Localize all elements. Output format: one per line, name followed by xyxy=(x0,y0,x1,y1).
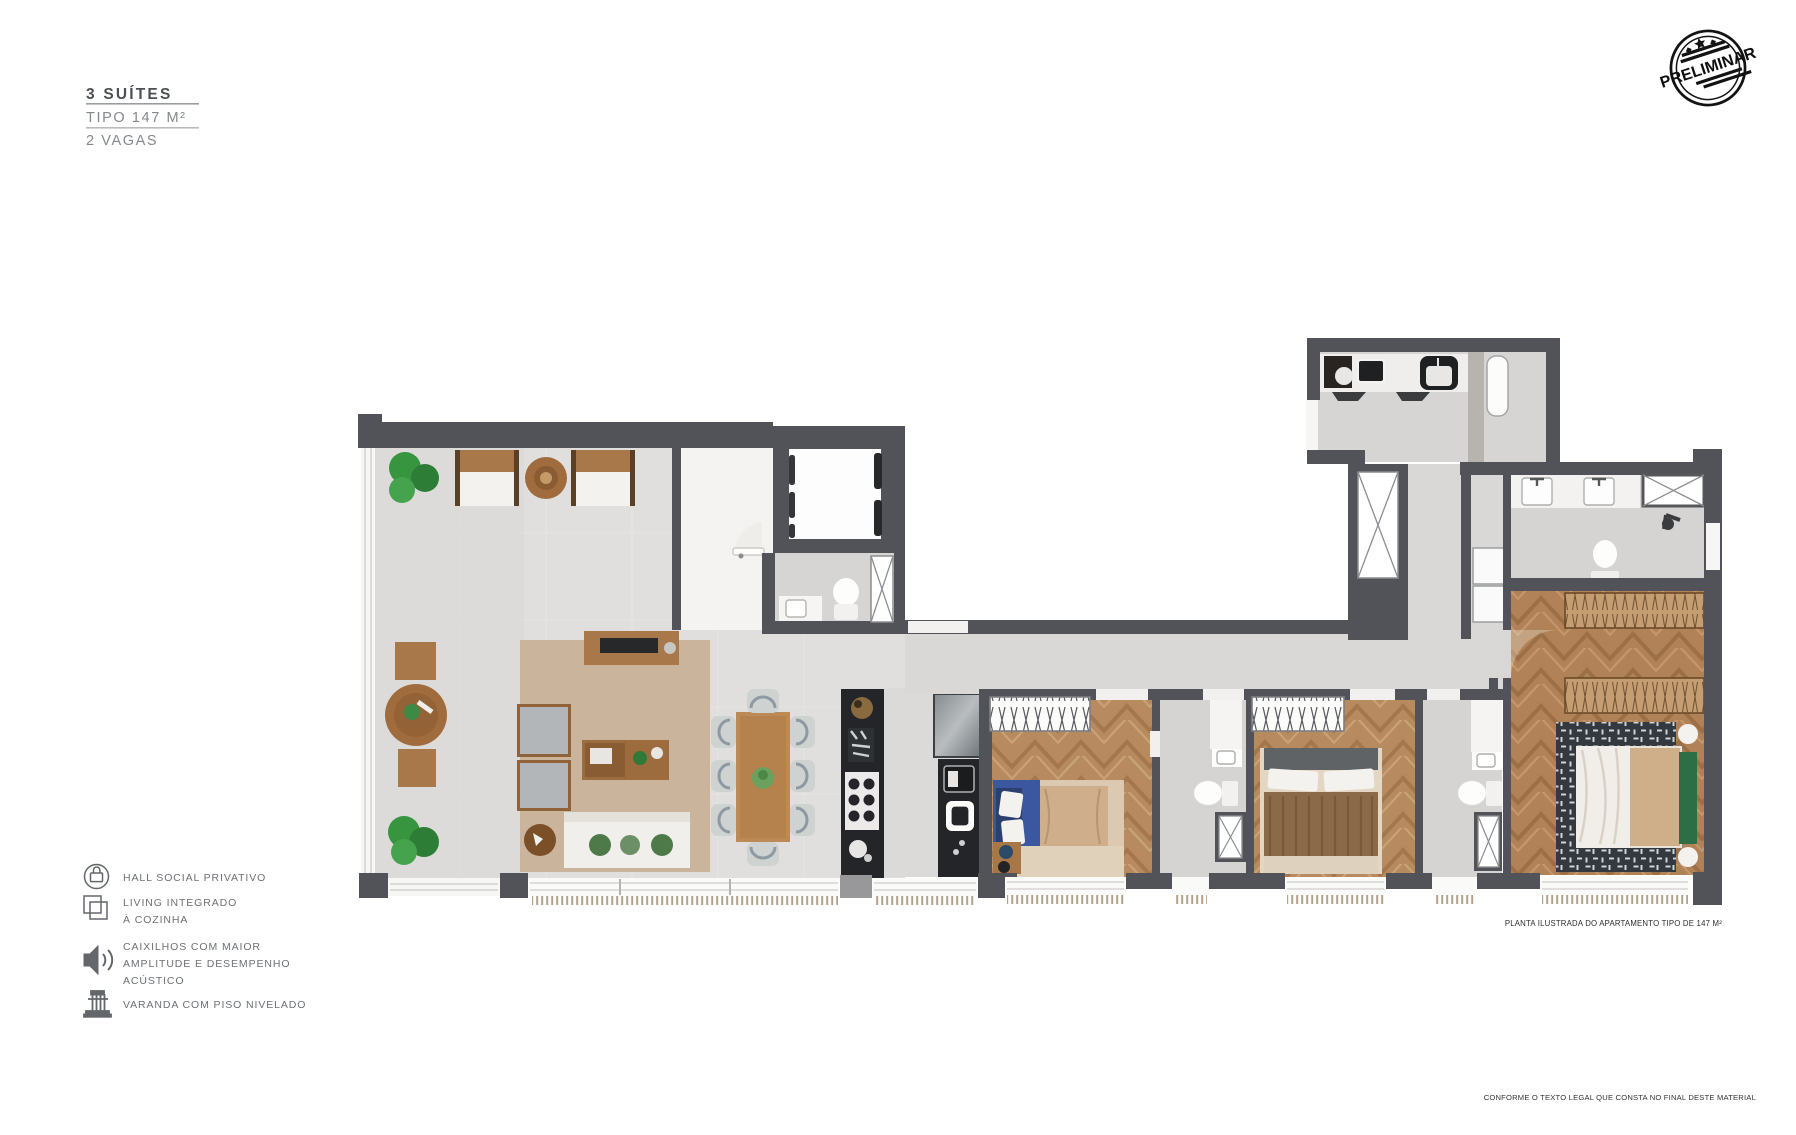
svg-text:CONFORME O TEXTO LEGAL QUE CON: CONFORME O TEXTO LEGAL QUE CONSTA NO FIN… xyxy=(1484,1093,1756,1102)
svg-text:HALL SOCIAL PRIVATIVO: HALL SOCIAL PRIVATIVO xyxy=(123,872,266,884)
svg-text:ACÚSTICO: ACÚSTICO xyxy=(123,974,184,987)
svg-text:2 VAGAS: 2 VAGAS xyxy=(86,133,158,149)
svg-text:PLANTA ILUSTRADA DO APARTAMENT: PLANTA ILUSTRADA DO APARTAMENTO TIPO DE … xyxy=(1505,919,1722,928)
svg-text:TIPO 147 M²: TIPO 147 M² xyxy=(86,110,187,126)
svg-text:3 SUÍTES: 3 SUÍTES xyxy=(86,86,173,103)
svg-text:VARANDA COM PISO NIVELADO: VARANDA COM PISO NIVELADO xyxy=(123,999,306,1011)
svg-text:AMPLITUDE E DESEMPENHO: AMPLITUDE E DESEMPENHO xyxy=(123,958,290,970)
svg-text:CAIXILHOS COM MAIOR: CAIXILHOS COM MAIOR xyxy=(123,941,261,953)
svg-text:À COZINHA: À COZINHA xyxy=(123,913,188,926)
svg-text:LIVING INTEGRADO: LIVING INTEGRADO xyxy=(123,897,237,909)
